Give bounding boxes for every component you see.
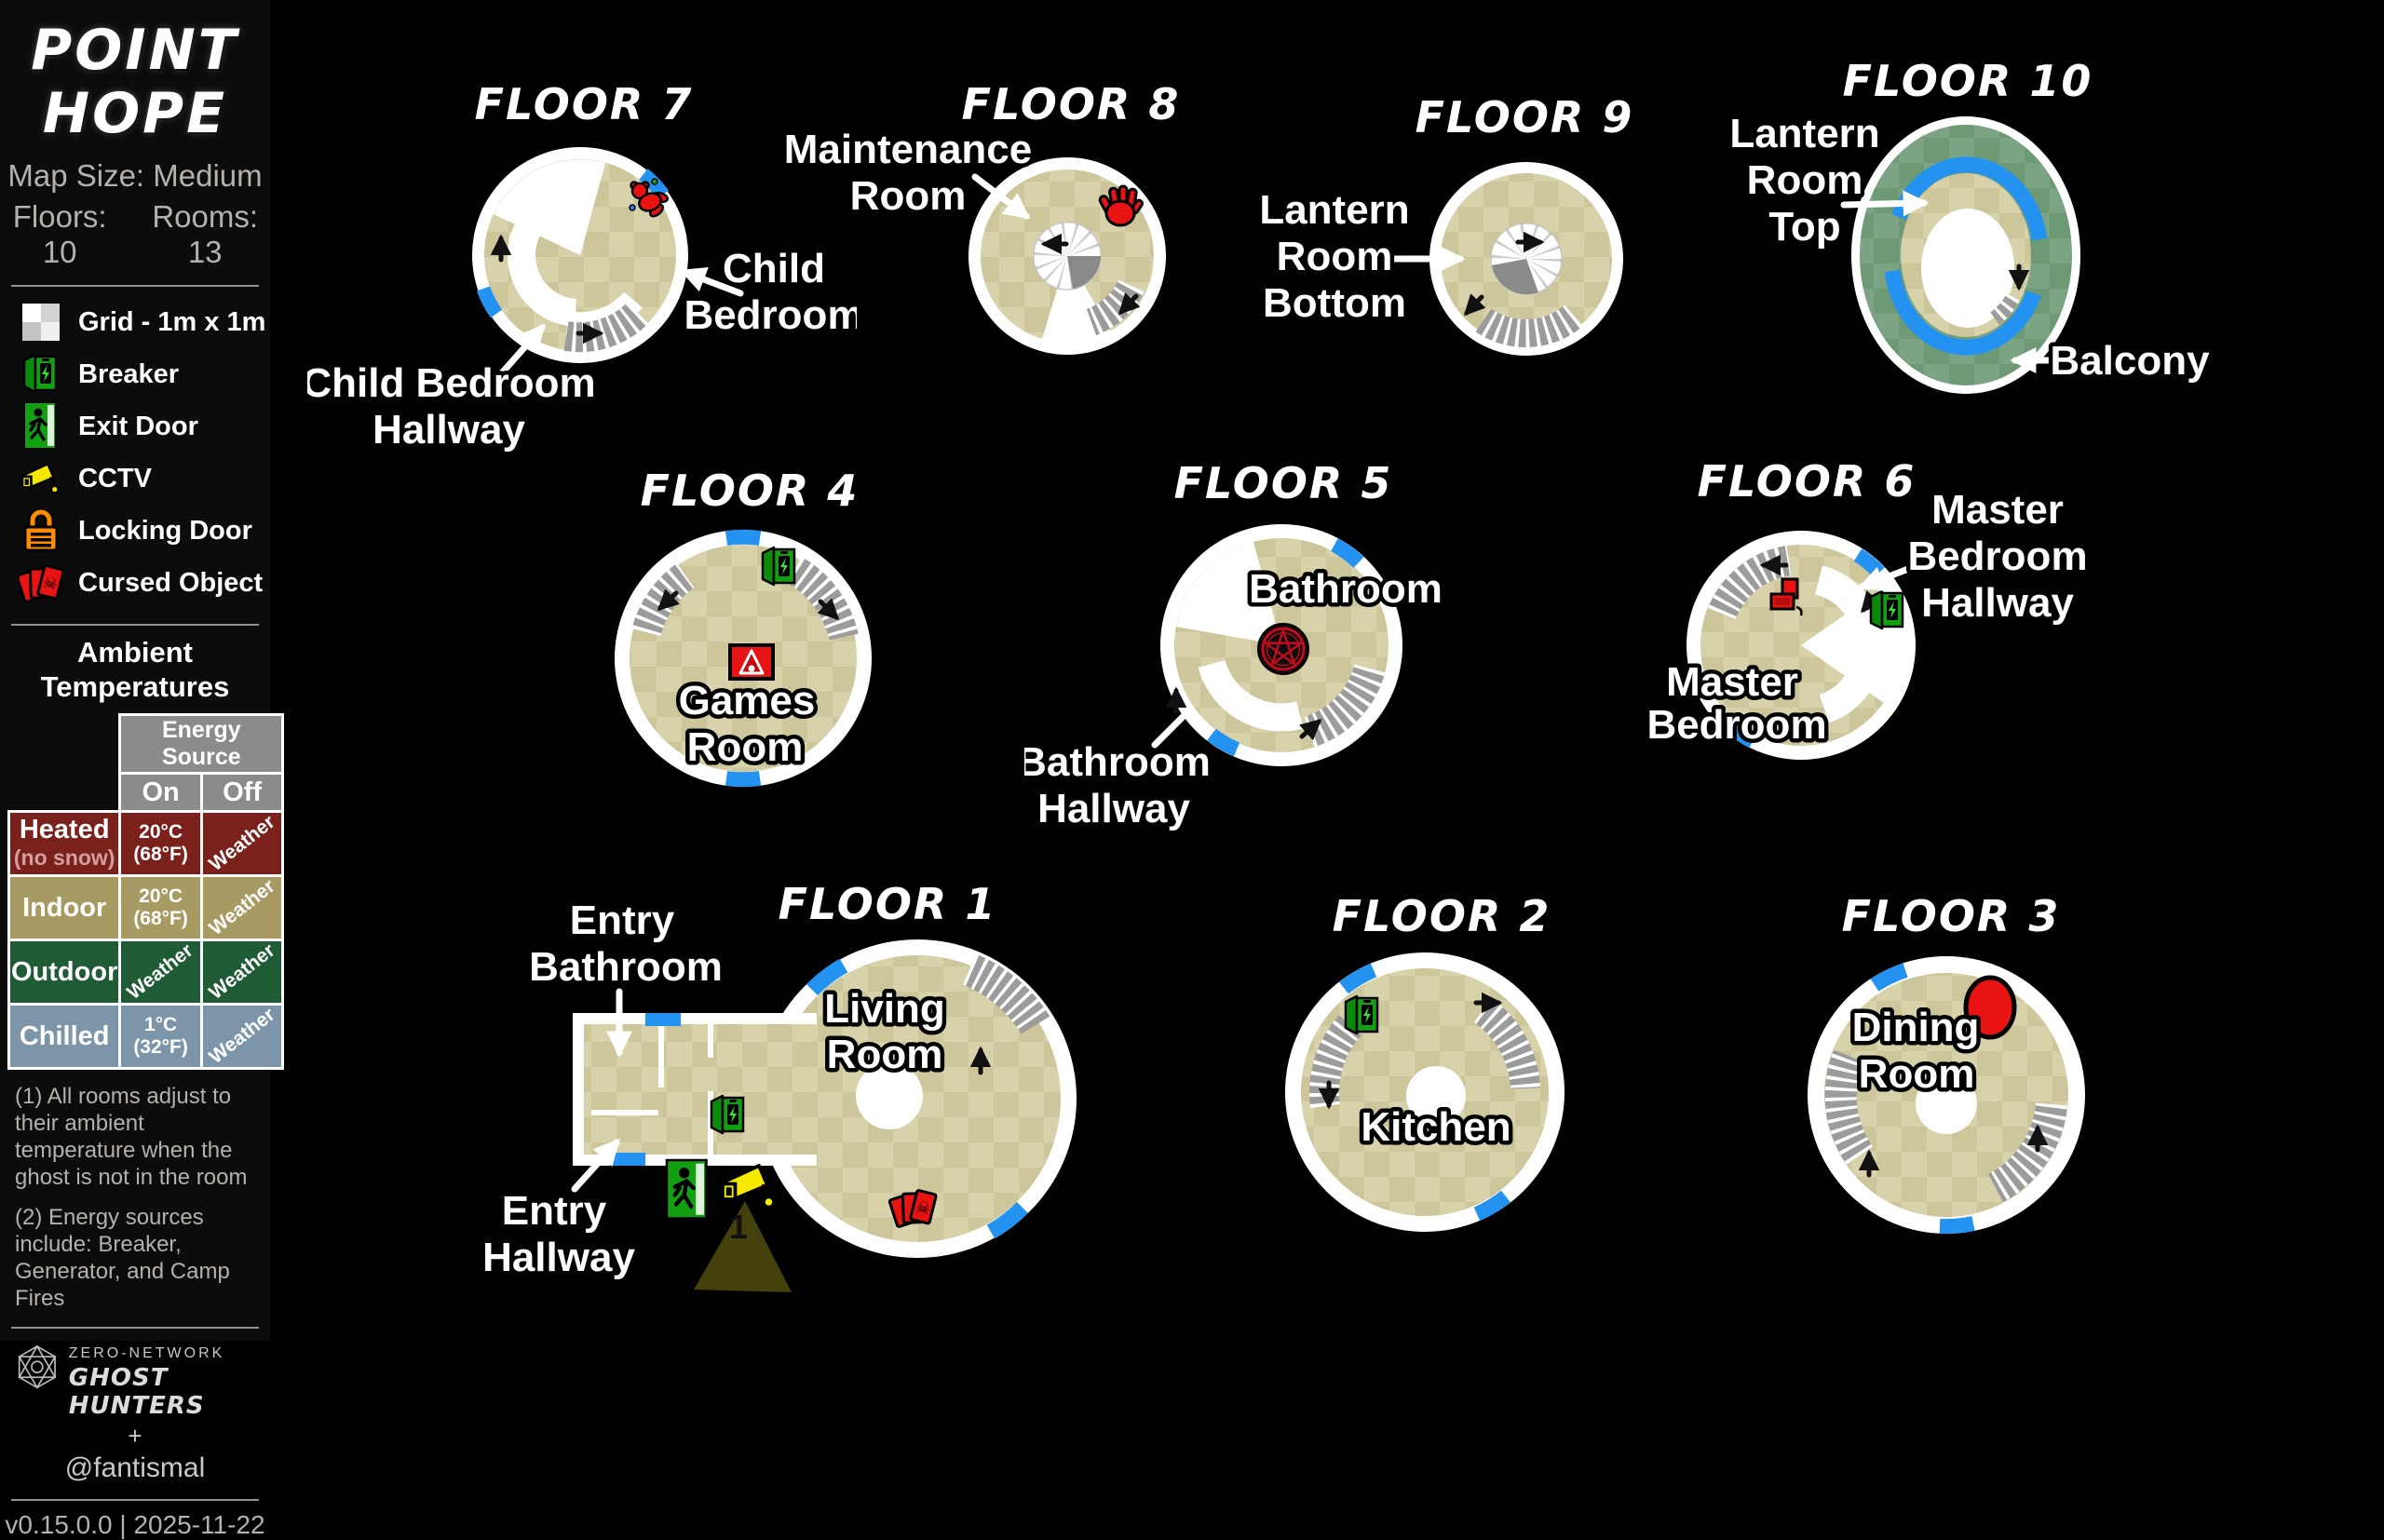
floor-4-title: FLOOR 4: [641, 466, 860, 516]
label-arrow: [1844, 203, 1924, 205]
floor-2-title: FLOOR 2: [1333, 891, 1551, 941]
balcony-label: Balcony: [2050, 338, 2210, 384]
living-room-label: Room: [827, 1032, 943, 1077]
floor-4-door-segment: [726, 537, 760, 538]
floor-9-title: FLOOR 9: [1415, 92, 1634, 142]
map-size-label: Map Size: Medium: [0, 158, 270, 194]
cursed-object-icon: [17, 561, 65, 604]
games-room-label: Room: [687, 724, 804, 770]
note-1: (1) All rooms adjust to their ambient te…: [15, 1083, 255, 1191]
table-row-outdoor: Outdoor Weather Weather: [9, 940, 283, 1005]
floor-4-map: FLOOR 4 Games Room: [531, 466, 1052, 857]
master-bedroom-label: Bedroom: [1648, 702, 1827, 748]
lantern-room-top-label: Lantern: [1729, 111, 1879, 156]
master-bedroom-hallway-label: Hallway: [1921, 580, 2074, 626]
cctv-number-label: 1: [729, 1208, 748, 1246]
floors-rooms-label: Floors: 10Rooms: 13: [0, 199, 270, 270]
bathroom-hallway-label: Bathroom: [1024, 739, 1211, 785]
entry-hallway-label: Entry: [502, 1188, 607, 1234]
floor-2-map: FLOOR 2 Kitchen: [1239, 875, 1667, 1304]
floor-1-door-segment: [645, 1013, 681, 1026]
floor-7-title: FLOOR 7: [475, 79, 694, 129]
floor-4-arcade-machine-icon: [730, 645, 773, 679]
plus-sign: +: [0, 1422, 270, 1451]
network-name: ZERO-NETWORK: [69, 1345, 270, 1362]
entry-hallway-label: Hallway: [482, 1235, 635, 1280]
table-row-heated: Heated(no snow) 20°C(68°F) Weather: [9, 812, 283, 876]
floor-5-map: FLOOR 5 Bathroom Bathroom Hallway: [1024, 456, 1592, 885]
on-header: On: [120, 774, 201, 812]
lantern-room-top-label: Top: [1768, 204, 1840, 250]
table-row-chilled: Chilled 1°C(32°F) Weather: [9, 1005, 283, 1069]
floor-1-interior-wall: [708, 1024, 713, 1058]
child-bedroom-hallway-label: Hallway: [372, 407, 525, 453]
lantern-room-bottom-label: Bottom: [1263, 280, 1406, 326]
floor-9-map: FLOOR 9 Lantern Room Bottom: [1257, 56, 1704, 447]
dining-room-label: Room: [1859, 1051, 1975, 1097]
brand-name: GHOST HUNTERS: [69, 1364, 270, 1420]
maintenance-room-label: Room: [850, 173, 967, 219]
lantern-room-bottom-label: Lantern: [1259, 187, 1409, 233]
cctv-icon: [17, 464, 65, 493]
ambient-temperatures-heading: Ambient Temperatures: [0, 635, 270, 704]
floor-8-map: FLOOR 8 Maintenance Room: [773, 56, 1322, 428]
lantern-room-bottom-label: Room: [1277, 234, 1393, 279]
author-handle: @fantismal: [0, 1452, 270, 1484]
locking-door-icon: [17, 509, 65, 553]
master-bedroom-hallway-label: Bedroom: [1907, 534, 2087, 579]
table-row-indoor: Indoor 20°C(68°F) Weather: [9, 876, 283, 940]
note-2: (2) Energy sources include: Breaker, Gen…: [15, 1204, 255, 1312]
floor-3-map: FLOOR 3 Dining Room: [1751, 875, 2179, 1304]
sidebar: POINT HOPE Map Size: Medium Floors: 10Ro…: [0, 0, 270, 1341]
off-header: Off: [201, 774, 282, 812]
master-bedroom-label: Master: [1666, 659, 1798, 705]
app-title: POINT HOPE: [0, 19, 270, 145]
floor-4-door-segment: [726, 778, 760, 779]
legend-item-exit-door: Exit Door: [0, 400, 270, 453]
floor-4-breaker-icon: [763, 547, 794, 585]
floor-3-title: FLOOR 3: [1842, 891, 2061, 941]
divider: [11, 1327, 259, 1329]
divider: [11, 285, 259, 287]
master-bedroom-hallway-label: Master: [1931, 487, 2064, 533]
divider: [11, 1499, 259, 1501]
games-room-label: Games: [679, 678, 816, 723]
floor-10-map: FLOOR 10 Lantern Room Top Balcony: [1723, 37, 2375, 428]
legend-item-cursed-object: Cursed Object: [0, 557, 270, 609]
divider: [11, 624, 259, 626]
exit-door-icon: [17, 402, 65, 451]
floor-8-title: FLOOR 8: [962, 79, 1181, 129]
floor-5-pentagram-icon: [1258, 624, 1308, 674]
energy-source-header: Energy Source: [120, 715, 283, 774]
bathroom-label: Bathroom: [1249, 566, 1443, 612]
legend-item-cctv: CCTV: [0, 453, 270, 505]
bathroom-hallway-label: Hallway: [1037, 786, 1190, 831]
ambient-temperatures-table: Energy Source On Off Heated(no snow) 20°…: [7, 713, 284, 1070]
floor-1-breaker-icon: [711, 1096, 743, 1133]
floor-1-interior-wall: [591, 1110, 658, 1115]
legend-item-locking-door: Locking Door: [0, 505, 270, 557]
network-logo-icon: [15, 1340, 60, 1396]
legend-item-breaker: Breaker: [0, 348, 270, 400]
floor-1-exit-door-icon: [667, 1160, 707, 1219]
kitchen-label: Kitchen: [1361, 1104, 1510, 1150]
floor-6-breaker-icon: [1871, 591, 1903, 628]
floor-1-map: FLOOR 1 1 Living Room Entry Bathroom Ent…: [466, 866, 1117, 1341]
dining-room-label: Dining: [1852, 1005, 1980, 1050]
floor-1-interior-wall: [658, 1024, 664, 1087]
entry-bathroom-label: Entry: [570, 898, 675, 943]
floor-3-door-segment: [1940, 1223, 1973, 1226]
breaker-icon: [17, 354, 65, 395]
floor-1-title: FLOOR 1: [779, 879, 997, 929]
legend-item-grid: Grid - 1m x 1m: [0, 296, 270, 348]
entry-bathroom-label: Bathroom: [529, 944, 723, 990]
floor-1-door-segment: [610, 1153, 645, 1166]
grid-icon: [17, 304, 65, 341]
floor-2-breaker-icon: [1346, 996, 1377, 1033]
floor-10-title: FLOOR 10: [1843, 56, 2093, 106]
credit-block: ZERO-NETWORK GHOST HUNTERS: [15, 1340, 270, 1420]
lantern-room-top-label: Room: [1747, 157, 1863, 203]
living-room-label: Living: [824, 986, 945, 1032]
floor-6-title: FLOOR 6: [1698, 456, 1917, 507]
floor-1-cctv-icon: [723, 1166, 774, 1207]
version-label: v0.15.0.0 | 2025-11-22: [0, 1510, 270, 1540]
floor-5-title: FLOOR 5: [1174, 458, 1393, 508]
floor-6-map: FLOOR 6 Master Bedroom Master Bedroom Ha…: [1648, 456, 2244, 866]
child-bedroom-hallway-label: Child Bedroom: [307, 360, 596, 406]
maintenance-room-label: Maintenance: [784, 127, 1033, 172]
